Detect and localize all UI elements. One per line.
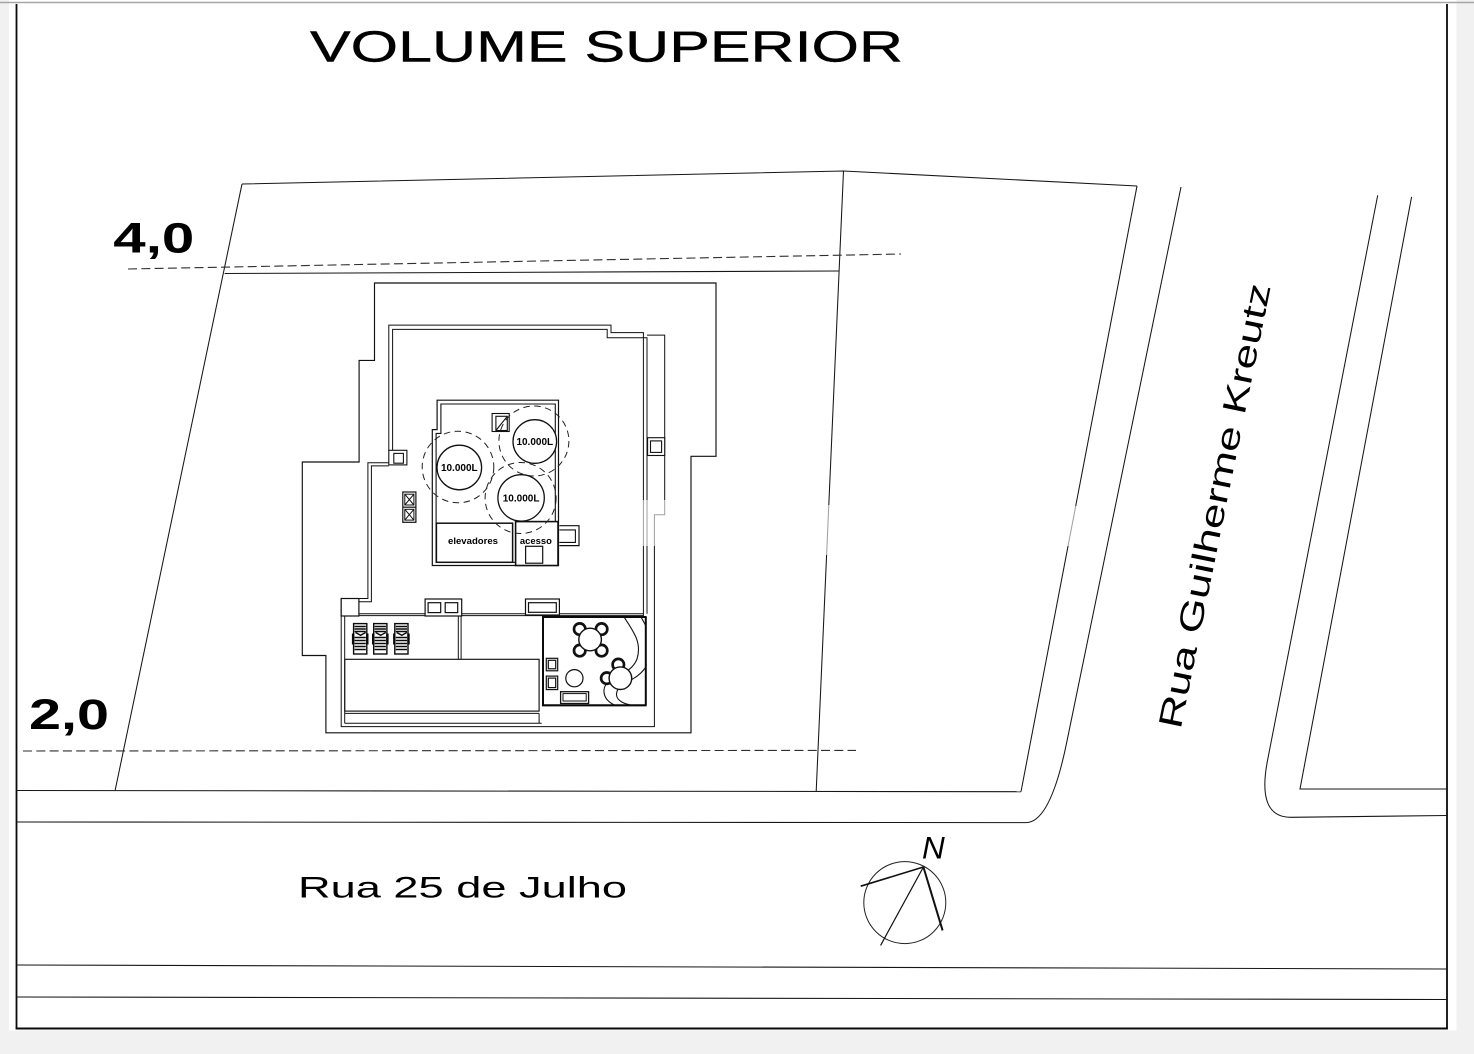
- svg-text:VOLUME SUPERIOR: VOLUME SUPERIOR: [310, 24, 903, 72]
- svg-text:N: N: [922, 830, 945, 866]
- svg-text:10.000L: 10.000L: [516, 437, 553, 448]
- svg-text:2,0: 2,0: [29, 692, 109, 739]
- svg-text:10.000L: 10.000L: [503, 494, 540, 505]
- svg-text:4,0: 4,0: [113, 215, 194, 262]
- svg-text:Rua 25 de Julho: Rua 25 de Julho: [298, 872, 627, 905]
- svg-text:10.000L: 10.000L: [441, 463, 478, 474]
- svg-text:acesso: acesso: [520, 536, 552, 547]
- svg-text:elevadores: elevadores: [448, 536, 498, 547]
